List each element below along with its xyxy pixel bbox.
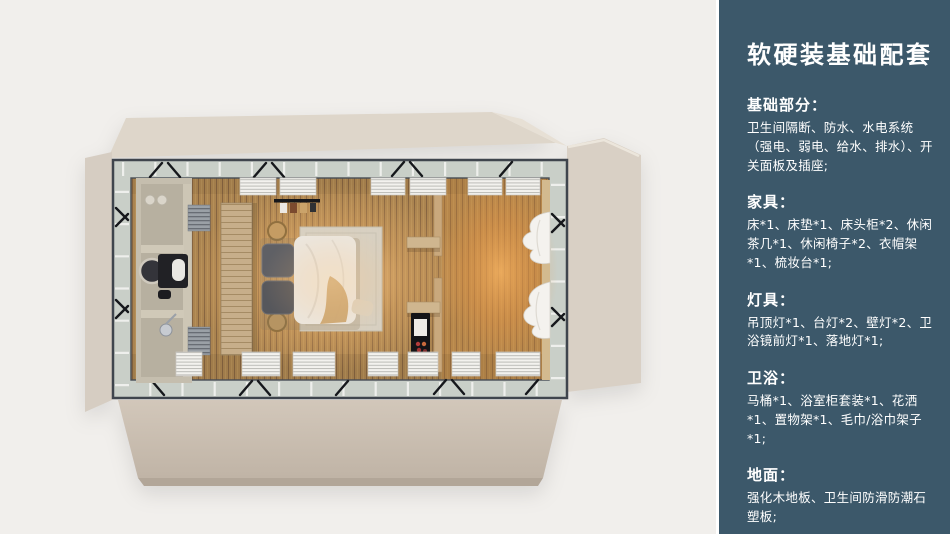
slide: 软硬装基础配套 基础部分： 卫生间隔断、防水、水电系统（强电、弱电、给水、排水）…	[0, 0, 950, 534]
section-heading: 地面：	[747, 464, 935, 485]
wall-shelf	[407, 237, 440, 248]
section-heading: 家具：	[747, 191, 935, 212]
woven-basket	[268, 222, 286, 240]
light-bloom	[262, 227, 402, 337]
section-heading: 基础部分：	[747, 94, 935, 115]
roof-top-wing	[108, 112, 556, 158]
wall-left-wing	[85, 152, 112, 412]
towel-roll	[145, 195, 155, 205]
section-bathroom: 卫浴： 马桶*1、浴室柜套装*1、花洒*1、置物架*1、毛巾/浴巾架子*1;	[747, 367, 935, 448]
apron-lip	[138, 478, 543, 486]
slatted-vent-panel	[188, 327, 210, 355]
section-lighting: 灯具： 吊顶灯*1、台灯*2、壁灯*2、卫浴镜前灯*1、落地灯*1;	[747, 289, 935, 352]
floorplan-panel	[0, 0, 716, 534]
section-flooring: 地面： 强化木地板、卫生间防滑防潮石塑板;	[747, 464, 935, 527]
wardrobe-partition	[221, 203, 257, 355]
section-body: 卫生间隔断、防水、水电系统（强电、弱电、给水、排水）、开关面板及插座;	[747, 119, 935, 175]
wall-shelf	[407, 302, 440, 313]
section-body: 床*1、床垫*1、床头柜*2、休闲茶几*1、休闲椅子*2、衣帽架*1、梳妆台*1…	[747, 216, 935, 272]
towel-roll	[157, 195, 167, 205]
section-heading: 卫浴：	[747, 367, 935, 388]
section-body: 吊顶灯*1、台灯*2、壁灯*2、卫浴镜前灯*1、落地灯*1;	[747, 314, 935, 352]
section-heading: 灯具：	[747, 289, 935, 310]
wall-right-wing	[567, 138, 641, 392]
section-body: 马桶*1、浴室柜套装*1、花洒*1、置物架*1、毛巾/浴巾架子*1;	[747, 392, 935, 448]
section-furniture: 家具： 床*1、床垫*1、床头柜*2、休闲茶几*1、休闲椅子*2、衣帽架*1、梳…	[747, 191, 935, 272]
floorplan-top-view-render	[0, 0, 716, 534]
section-body: 强化木地板、卫生间防滑防潮石塑板;	[747, 489, 935, 527]
section-basics: 基础部分： 卫生间隔断、防水、水电系统（强电、弱电、给水、排水）、开关面板及插座…	[747, 94, 935, 175]
coat-rack	[274, 199, 320, 213]
wall-bottom-apron	[118, 400, 562, 478]
slatted-vent-panel	[188, 205, 210, 231]
slide-title: 软硬装基础配套	[747, 40, 935, 70]
sink	[172, 259, 185, 281]
info-sidebar: 软硬装基础配套 基础部分： 卫生间隔断、防水、水电系统（强电、弱电、给水、排水）…	[716, 0, 950, 534]
shower-head	[160, 324, 172, 336]
